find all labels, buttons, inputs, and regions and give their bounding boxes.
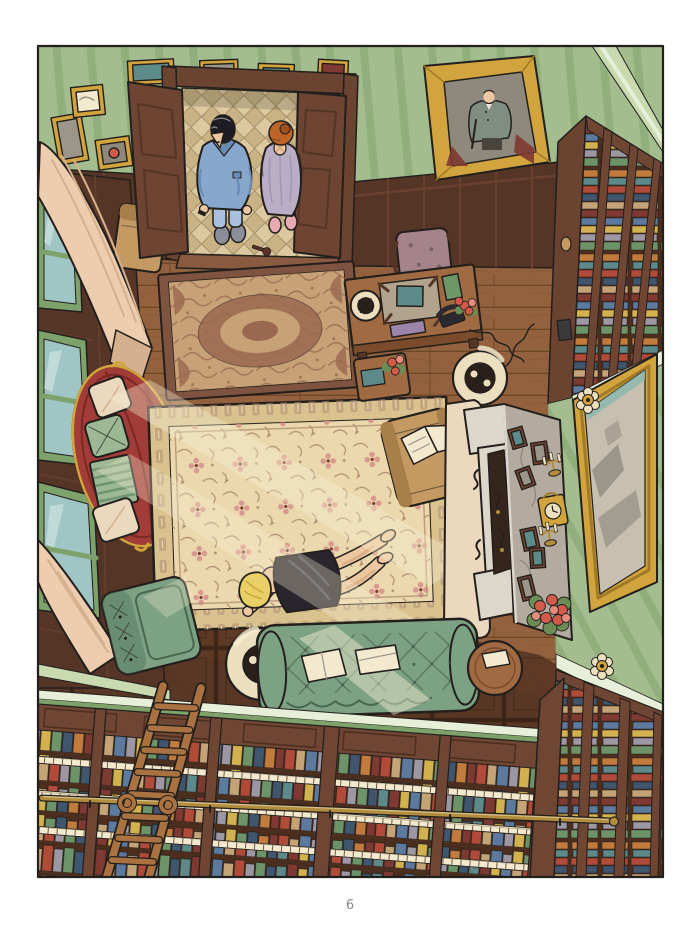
green-sofa (256, 618, 479, 720)
desk-notebook[interactable] (397, 286, 423, 306)
flower-table (353, 353, 410, 402)
side-table (468, 641, 522, 695)
portrait-painting (424, 56, 550, 180)
fireplace (444, 400, 572, 642)
comic-panel: 6 (0, 0, 700, 938)
comic-page: 6 (0, 0, 700, 938)
desk-book[interactable] (442, 274, 462, 301)
page-number: 6 (346, 898, 354, 913)
small-rug (158, 261, 362, 400)
